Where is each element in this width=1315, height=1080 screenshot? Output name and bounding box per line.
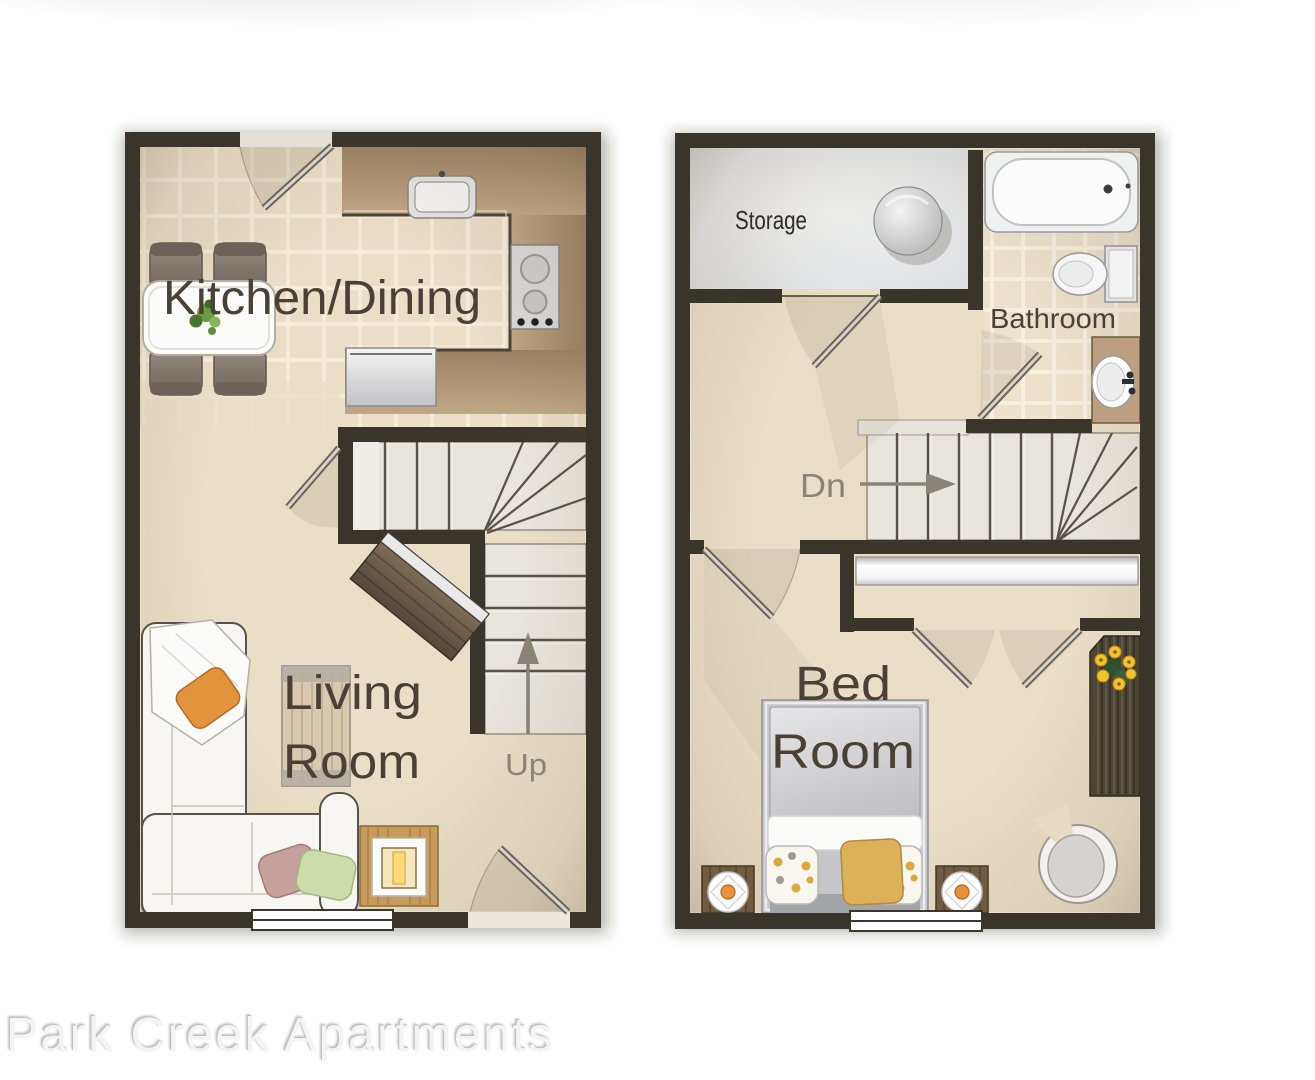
entry-threshold	[240, 132, 332, 147]
floorplan-canvas: Kitchen/Dining Living Room Up	[0, 0, 1315, 1080]
lamp-icon	[721, 885, 735, 899]
bedroom-label-line2: Room	[771, 726, 915, 779]
floor1-plan: Kitchen/Dining Living Room Up	[125, 132, 601, 930]
storage-label: Storage	[735, 205, 807, 235]
floorplan-drawing: Kitchen/Dining Living Room Up	[0, 0, 1315, 1080]
living-room-window	[252, 910, 393, 930]
stairs-down-label: Dn	[800, 467, 846, 504]
living-room-label-line2: Room	[283, 736, 420, 789]
nightstand-right	[936, 866, 988, 913]
living-room-label-line1: Living	[283, 667, 422, 720]
floor2-plan: Storage Bathroom Dn Bed Room	[675, 133, 1155, 931]
lamp-icon	[382, 848, 416, 888]
back-threshold	[468, 912, 570, 928]
pillow-yellow	[840, 838, 903, 905]
bedroom-label-line1: Bed	[795, 658, 891, 711]
lamp-table	[360, 826, 438, 906]
bathroom-sink-icon	[1092, 337, 1140, 423]
bathtub-icon	[985, 152, 1138, 232]
watermark: Park Creek Apartments	[6, 1008, 555, 1063]
nightstand-left	[702, 866, 754, 913]
pillow-dotted-left	[766, 846, 818, 904]
kitchen-dining-label: Kitchen/Dining	[163, 272, 481, 325]
lamp-icon	[955, 885, 969, 899]
stairs-up-label: Up	[505, 747, 547, 782]
dresser-with-flowers	[1090, 636, 1140, 796]
bathroom-label: Bathroom	[990, 303, 1116, 334]
bedroom-window	[850, 911, 982, 931]
closet-sliding-doors	[856, 557, 1138, 585]
